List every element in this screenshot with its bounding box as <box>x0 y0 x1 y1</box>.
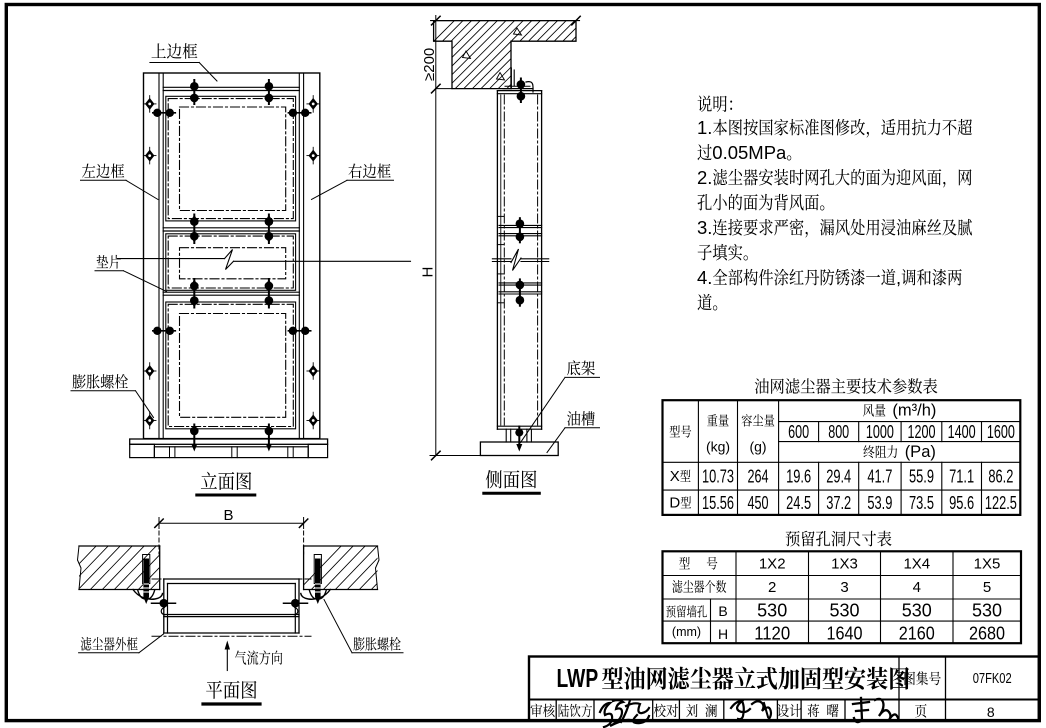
svg-text:1200: 1200 <box>908 422 936 442</box>
svg-text:1.: 1. <box>697 117 712 138</box>
svg-text:264: 264 <box>748 467 769 487</box>
svg-text:600: 600 <box>788 422 809 442</box>
svg-text:(g): (g) <box>749 439 766 455</box>
svg-text:X: X <box>670 468 680 485</box>
svg-text:450: 450 <box>748 493 769 513</box>
svg-text:≥200: ≥200 <box>421 48 438 81</box>
svg-text:55.9: 55.9 <box>909 467 934 487</box>
svg-text:1640: 1640 <box>827 624 863 644</box>
svg-text:530: 530 <box>757 601 787 621</box>
svg-text:1120: 1120 <box>754 624 790 644</box>
svg-text:1X5: 1X5 <box>974 556 1001 573</box>
svg-text:95.6: 95.6 <box>949 493 974 513</box>
svg-text:1000: 1000 <box>866 422 894 442</box>
svg-text:3: 3 <box>840 579 848 596</box>
svg-text:1400: 1400 <box>948 422 976 442</box>
svg-text:4.: 4. <box>697 267 712 288</box>
svg-text:1600: 1600 <box>987 422 1015 442</box>
svg-text:(m³/h): (m³/h) <box>892 402 936 420</box>
svg-text:1X4: 1X4 <box>903 556 930 573</box>
svg-text:8: 8 <box>987 704 995 720</box>
svg-text:122.5: 122.5 <box>985 493 1017 513</box>
svg-text:1X2: 1X2 <box>759 556 786 573</box>
svg-text:B: B <box>223 507 233 524</box>
svg-text:H: H <box>718 626 728 642</box>
svg-text:,: , <box>896 267 901 288</box>
svg-text:530: 530 <box>902 601 932 621</box>
svg-text:(kg): (kg) <box>706 439 730 455</box>
svg-text:H: H <box>420 267 437 278</box>
svg-text:53.9: 53.9 <box>867 493 892 513</box>
svg-text:15.56: 15.56 <box>702 493 734 513</box>
svg-text:D: D <box>669 495 680 512</box>
svg-text:19.6: 19.6 <box>786 467 811 487</box>
svg-text:29.4: 29.4 <box>826 467 851 487</box>
svg-text:LWP: LWP <box>557 663 599 693</box>
svg-text:2680: 2680 <box>969 624 1005 644</box>
svg-text:73.5: 73.5 <box>909 493 934 513</box>
svg-text:3.: 3. <box>697 217 712 238</box>
svg-text:530: 530 <box>972 601 1002 621</box>
svg-text:B: B <box>718 603 727 619</box>
svg-text:41.7: 41.7 <box>867 467 892 487</box>
svg-text:(Pa): (Pa) <box>905 443 936 461</box>
svg-text:2: 2 <box>768 579 776 596</box>
svg-text:(mm): (mm) <box>672 625 701 639</box>
svg-text:71.1: 71.1 <box>949 467 974 487</box>
svg-text:2.: 2. <box>697 167 712 188</box>
svg-text:1X3: 1X3 <box>831 556 858 573</box>
svg-text:530: 530 <box>829 601 859 621</box>
svg-text:2160: 2160 <box>899 624 935 644</box>
svg-text:800: 800 <box>828 422 849 442</box>
svg-text:5: 5 <box>983 579 991 596</box>
svg-text:4: 4 <box>913 579 921 596</box>
svg-text:86.2: 86.2 <box>988 467 1013 487</box>
svg-text:24.5: 24.5 <box>786 493 811 513</box>
svg-text:0.05MPa: 0.05MPa <box>712 142 787 163</box>
svg-text:37.2: 37.2 <box>826 493 851 513</box>
svg-text:10.73: 10.73 <box>702 467 734 487</box>
svg-text:07FK02: 07FK02 <box>973 671 1012 687</box>
